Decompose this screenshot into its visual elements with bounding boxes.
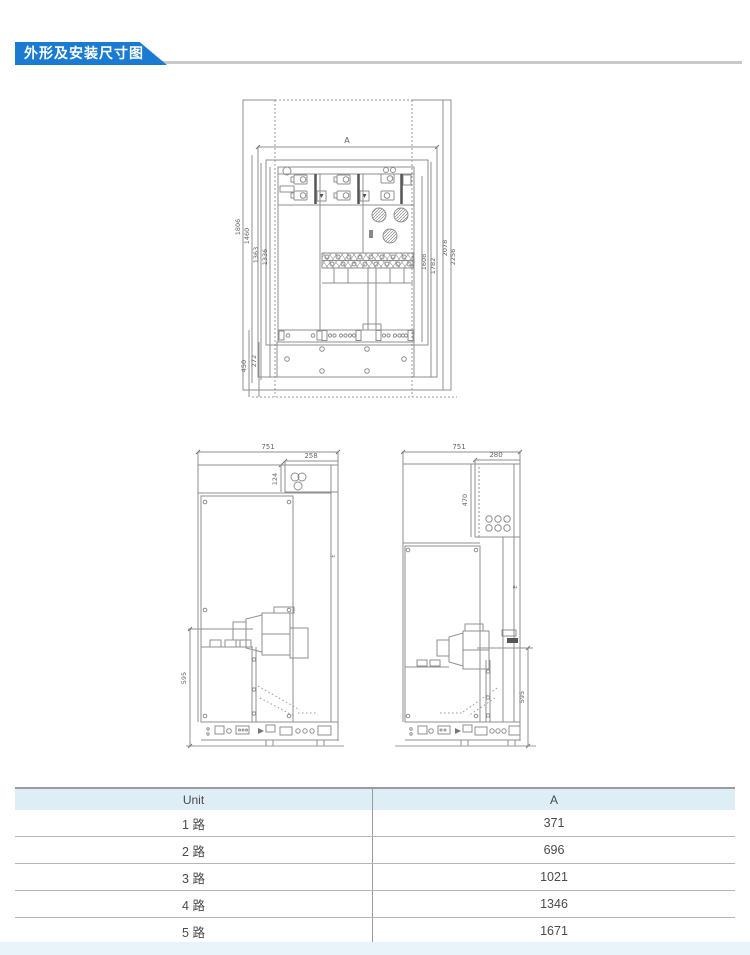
side-view-right-drawing: 751 280 470 E: [395, 443, 536, 748]
dim-label-124: 124: [271, 473, 279, 485]
dim-label-450: 450: [240, 360, 248, 372]
table-cell-a: 1346: [372, 891, 735, 917]
table-cell-a: 696: [372, 837, 735, 863]
table-row: 5 路 1671: [15, 917, 735, 944]
table-cell-a: 1021: [372, 864, 735, 890]
table-cell-unit: 3 路: [15, 868, 372, 887]
dim-label-272: 272: [250, 355, 258, 367]
dim-label-1336: 1336: [261, 249, 269, 266]
catalog-page: 外形及安装尺寸图 A: [0, 0, 750, 955]
table-row: 1 路 371: [15, 810, 735, 836]
dim-label-2256: 2256: [449, 249, 457, 266]
cable-bushing-left: [188, 607, 308, 658]
table-cell-a: 371: [372, 810, 735, 836]
front-view-drawing: A 1806 1460 1363 1336 1608 1782 2078 225…: [234, 100, 457, 397]
dim-label-751-left: 751: [261, 443, 274, 451]
dim-label-1363: 1363: [252, 247, 260, 264]
dim-label-1608: 1608: [420, 254, 428, 271]
dim-label-470: 470: [461, 494, 469, 506]
dim-label-1806: 1806: [234, 219, 242, 236]
table-cell-a: 1671: [372, 918, 735, 944]
dim-label-2078: 2078: [441, 240, 449, 257]
technical-drawings: A 1806 1460 1363 1336 1608 1782 2078 225…: [0, 0, 750, 780]
depth-label-left: E: [331, 554, 337, 557]
dim-label-A: A: [344, 136, 350, 145]
dimension-table: Unit A 1 路 371 2 路 696 3 路 1021 4 路 1346…: [15, 787, 735, 947]
base-plate: [277, 342, 414, 377]
table-cell-unit: 2 路: [15, 841, 372, 860]
dim-label-280: 280: [489, 451, 502, 459]
table-cell-unit: 4 路: [15, 895, 372, 914]
dim-label-258: 258: [304, 452, 317, 460]
depth-label-right: E: [513, 585, 519, 588]
base-right: [395, 722, 536, 746]
dim-label-1460: 1460: [243, 228, 251, 245]
table-row: 2 路 696: [15, 836, 735, 863]
base-left: [186, 722, 344, 746]
table-row: 3 路 1021: [15, 863, 735, 890]
dim-label-751-right: 751: [452, 443, 465, 451]
table-row: 4 路 1346: [15, 890, 735, 917]
breaker-symbols: [280, 174, 411, 204]
table-header-row: Unit A: [15, 789, 735, 810]
door-panel-right: [405, 546, 480, 722]
door-panel-left: [201, 496, 293, 722]
table-header-a: A: [372, 789, 735, 810]
busbar-strip: [322, 253, 413, 268]
table-cell-unit: 5 路: [15, 922, 372, 941]
dim-label-595-left: 595: [180, 672, 188, 684]
page-footer-band: [0, 942, 750, 955]
terminal-strip: [278, 330, 414, 341]
side-view-left-drawing: 751 258 124 E: [180, 443, 344, 748]
table-cell-unit: 1 路: [15, 814, 372, 833]
table-header-unit: Unit: [15, 793, 372, 807]
dim-label-595-right: 595: [518, 691, 526, 703]
dim-label-1782: 1782: [429, 258, 437, 275]
bushing-circles: [369, 208, 408, 243]
front-view-dashed-envelope: [252, 100, 457, 397]
